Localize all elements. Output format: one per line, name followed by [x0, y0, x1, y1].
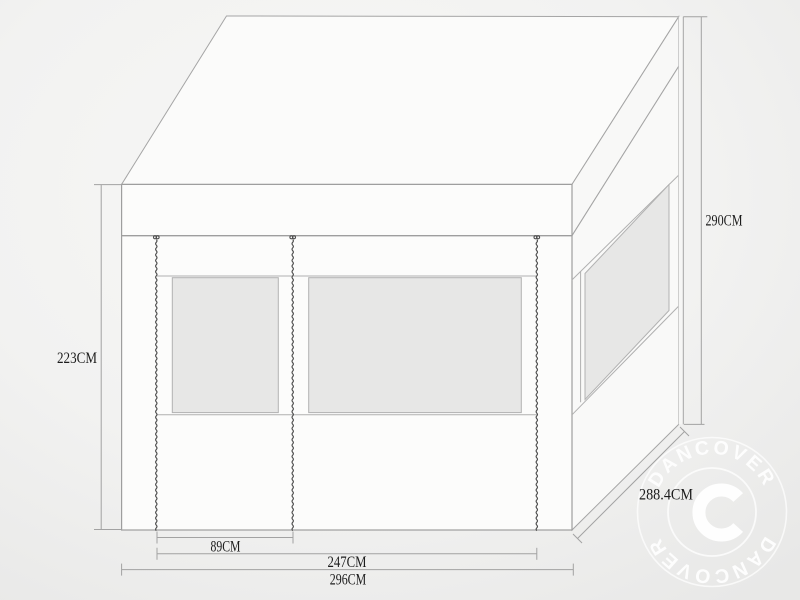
- svg-text:290CM: 290CM: [706, 213, 743, 230]
- svg-text:89CM: 89CM: [211, 538, 241, 555]
- svg-text:247CM: 247CM: [328, 554, 367, 571]
- svg-text:296CM: 296CM: [330, 572, 367, 589]
- svg-text:288.4CM: 288.4CM: [639, 487, 693, 504]
- svg-text:223CM: 223CM: [57, 350, 97, 367]
